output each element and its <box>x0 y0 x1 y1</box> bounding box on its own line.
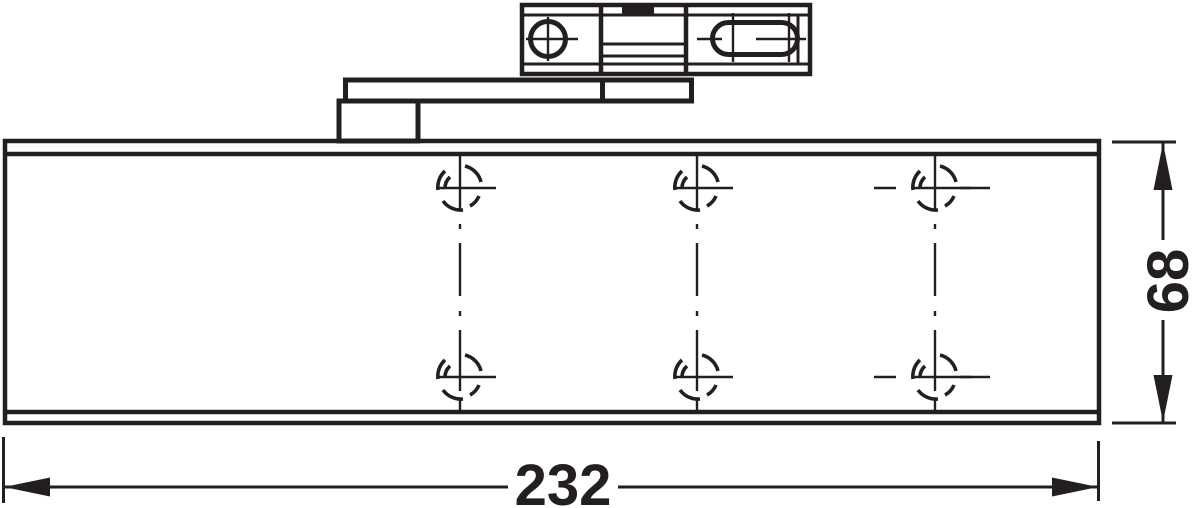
arm-short-segment <box>603 80 692 101</box>
mounting-plate <box>522 4 810 74</box>
fixing-points <box>438 156 990 410</box>
drawing-canvas: 232 68 <box>0 0 1192 508</box>
width-dimension-label: 232 <box>515 453 612 508</box>
height-dimension: 68 <box>1112 142 1192 423</box>
screw-fixing-point-icon <box>675 166 733 210</box>
screw-fixing-point-icon <box>675 355 733 399</box>
screw-fixing-point-icon <box>438 355 496 399</box>
arrow-up-icon <box>1154 143 1173 190</box>
screw-hole-circle-icon <box>526 17 578 61</box>
adjustment-slot-icon <box>697 13 806 62</box>
screw-fixing-point-icon <box>438 166 496 210</box>
arrow-down-icon <box>1154 375 1173 422</box>
hole-centerline-extensions <box>874 188 990 377</box>
arrow-right-icon <box>1052 478 1098 497</box>
arrow-left-icon <box>4 478 50 497</box>
arm-shoe <box>339 101 418 141</box>
arm-long-segment <box>346 80 603 101</box>
technical-drawing: 232 68 <box>0 0 1192 508</box>
closer-arm <box>339 80 692 141</box>
height-dimension-label: 68 <box>1136 249 1192 314</box>
width-dimension: 232 <box>4 437 1099 508</box>
mounting-plate-top-block <box>622 4 654 14</box>
pivot-block-ribs <box>603 44 684 56</box>
